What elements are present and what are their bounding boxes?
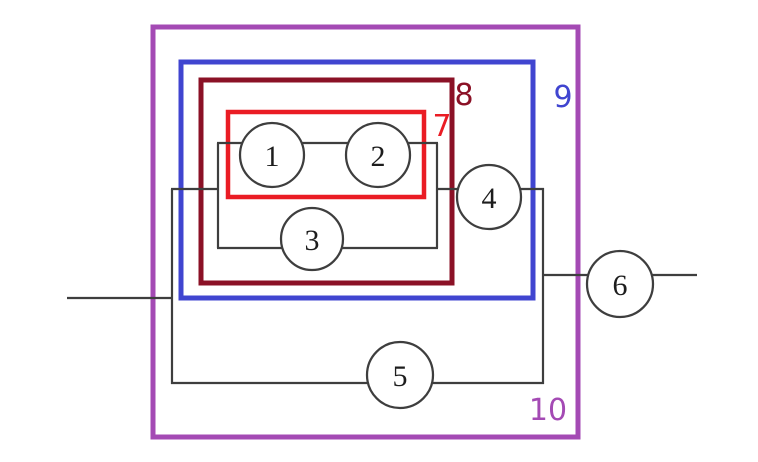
group-10-box xyxy=(153,27,578,437)
diagram-canvas: 1 2 3 4 5 6 7 8 9 10 xyxy=(0,0,758,462)
nodes-layer xyxy=(240,123,653,408)
block-diagram-svg: 1 2 3 4 5 6 7 8 9 10 xyxy=(0,0,758,462)
node-1-label: 1 xyxy=(265,140,280,173)
node-4-label: 4 xyxy=(482,182,497,215)
group-7-label: 7 xyxy=(432,109,451,144)
node-5-label: 5 xyxy=(393,360,408,393)
group-10-label: 10 xyxy=(529,393,567,428)
node-2-label: 2 xyxy=(371,140,386,173)
node-3-label: 3 xyxy=(305,224,320,257)
group-8-label: 8 xyxy=(454,78,473,113)
group-boxes-layer xyxy=(153,27,578,437)
node-6-label: 6 xyxy=(613,269,628,302)
group-9-label: 9 xyxy=(553,80,572,115)
